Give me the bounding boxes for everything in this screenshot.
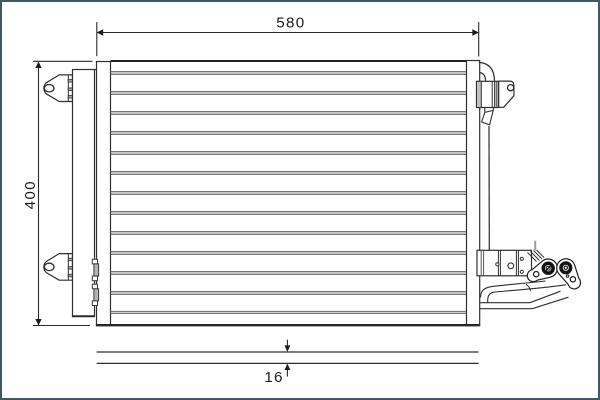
svg-text:580: 580 xyxy=(276,15,305,32)
svg-text:16: 16 xyxy=(264,369,283,386)
svg-text:400: 400 xyxy=(22,180,39,209)
